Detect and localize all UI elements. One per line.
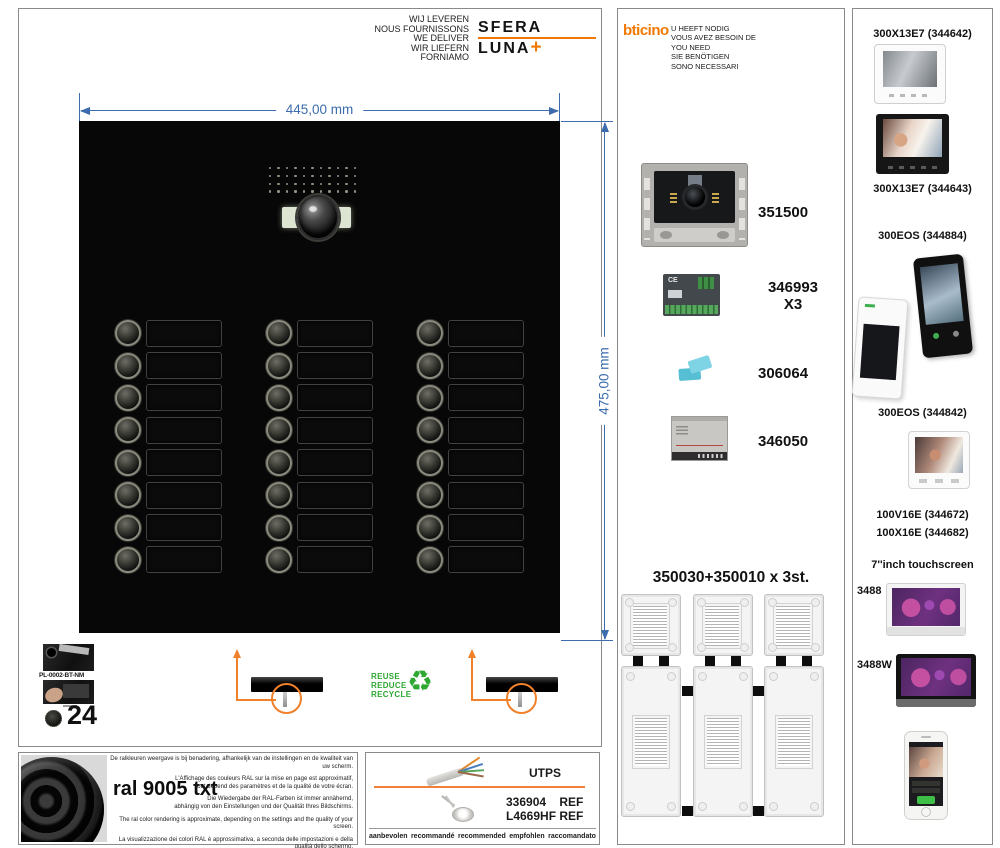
connector-tab xyxy=(705,656,715,666)
flush-box-small xyxy=(693,594,753,656)
arrow-down-icon xyxy=(601,630,609,640)
connector-tab xyxy=(633,656,643,666)
connector-tab xyxy=(776,656,786,666)
call-button-cell xyxy=(417,317,568,349)
word-empfohlen: empfohlen xyxy=(509,833,544,840)
highlight-circle-icon xyxy=(506,683,537,714)
recycle-icon: ♻ xyxy=(407,664,433,699)
name-plate xyxy=(297,514,373,541)
call-button-icon xyxy=(266,417,292,443)
you-need-box: bticino U HEEFT NODIG VOUS AVEZ BESOIN D… xyxy=(617,8,845,845)
speaker-dot xyxy=(286,175,288,177)
speaker-dot xyxy=(269,167,271,169)
speaker-dot xyxy=(337,183,339,185)
height-dimension: 475,00 mm xyxy=(561,121,613,641)
mounting-illustration-left xyxy=(233,649,333,717)
name-plate xyxy=(146,352,222,379)
call-button-icon xyxy=(115,515,141,541)
call-button-cell xyxy=(417,447,568,479)
call-button-icon xyxy=(417,320,443,346)
video-monitor-white-image xyxy=(874,44,946,104)
flush-box-small xyxy=(621,594,681,656)
speaker-dot xyxy=(345,183,347,185)
connector-tab xyxy=(659,656,669,666)
instruction-label xyxy=(630,603,670,649)
handset-white-image xyxy=(852,296,909,399)
ref-351500: 351500 xyxy=(758,204,808,221)
call-button-icon xyxy=(266,450,292,476)
name-plate xyxy=(297,384,373,411)
call-button-cell xyxy=(266,414,417,446)
camera-module-image xyxy=(641,163,748,247)
ref-346993-number: 346993 xyxy=(758,279,828,296)
call-button-cell xyxy=(266,349,417,381)
call-button-icon xyxy=(266,385,292,411)
we-deliver-text: WIJ LEVEREN NOUS FOURNISSONS WE DELIVER … xyxy=(359,15,469,63)
bticino-logo: bticino xyxy=(623,22,669,39)
box-connector xyxy=(682,686,693,696)
disclaimer-nl: De ralkleuren weergave is bij benadering… xyxy=(103,756,353,771)
name-plate xyxy=(146,417,222,444)
speaker-dot xyxy=(286,167,288,169)
speaker-dot xyxy=(277,190,279,192)
speaker-dot xyxy=(320,190,322,192)
speaker-dot xyxy=(354,167,356,169)
speaker-dot xyxy=(328,183,330,185)
name-plate xyxy=(448,352,524,379)
name-plate xyxy=(146,449,222,476)
name-plate xyxy=(448,384,524,411)
arrow-right-icon xyxy=(549,107,559,115)
call-button-icon xyxy=(266,547,292,573)
disclaimer-fr: L'Affichage des couleurs RAL sur la mise… xyxy=(103,776,353,791)
device-label-344642: 300X13E7 (344642) xyxy=(853,28,992,40)
home-button-icon xyxy=(921,807,931,817)
call-button-grid xyxy=(115,317,568,576)
ref-346993: 346993 X3 xyxy=(758,279,828,313)
camera-lens-icon xyxy=(297,195,339,240)
screw-count: 24 xyxy=(67,700,97,731)
call-button-icon xyxy=(115,320,141,346)
device-label-344672: 100V16E (344672) xyxy=(853,509,992,521)
flush-box-tall xyxy=(764,666,824,817)
speaker-dot xyxy=(311,167,313,169)
speaker-dot xyxy=(277,175,279,177)
connector-tab xyxy=(731,656,741,666)
screw-icon xyxy=(45,710,62,727)
call-button-icon xyxy=(115,547,141,573)
speaker-dot xyxy=(286,183,288,185)
call-button-icon xyxy=(417,547,443,573)
call-button-icon xyxy=(266,353,292,379)
flush-box-tall xyxy=(693,666,753,817)
instruction-label xyxy=(632,715,670,769)
instruction-label xyxy=(704,715,742,769)
call-button-icon xyxy=(115,417,141,443)
compatible-devices-box: 300X13E7 (344642) 300X13E7 (344643) 300E… xyxy=(852,8,993,845)
name-plate xyxy=(297,352,373,379)
name-plate xyxy=(297,546,373,573)
cable-box: UTPS 336904 REF L4669HF REF aanbevolen r… xyxy=(365,752,600,845)
plate-ref-label: PL-0002-BT-NM xyxy=(39,672,99,679)
speaker-dot xyxy=(345,190,347,192)
arrow-line xyxy=(236,657,238,701)
speaker-dot xyxy=(303,190,305,192)
speaker-dot xyxy=(286,190,288,192)
plate-photo-top xyxy=(43,644,94,671)
device-label-344643: 300X13E7 (344643) xyxy=(853,183,992,195)
call-button-cell xyxy=(115,317,266,349)
video-monitor-black-image xyxy=(876,114,949,174)
speaker-dot xyxy=(303,175,305,177)
call-button-cell xyxy=(417,511,568,543)
box-connector xyxy=(753,806,764,816)
disclaimer-en: The ral color rendering is approximate, … xyxy=(103,817,353,832)
speaker-dot xyxy=(269,190,271,192)
smartphone-app-image xyxy=(904,731,948,820)
arrow-line xyxy=(471,657,473,701)
device-label-344842: 300EOS (344842) xyxy=(853,407,992,419)
call-button-cell xyxy=(115,349,266,381)
call-button-icon xyxy=(115,482,141,508)
word-aanbevolen: aanbevolen xyxy=(369,833,408,840)
recommended-words: aanbevolen recommandé recommended empfoh… xyxy=(369,828,596,840)
word-recommande: recommandé xyxy=(411,833,455,840)
call-button-icon xyxy=(115,353,141,379)
call-button-cell xyxy=(417,349,568,381)
arrow-line xyxy=(471,699,511,701)
speaker-dot xyxy=(303,167,305,169)
speaker-dot xyxy=(337,190,339,192)
name-plate xyxy=(448,449,524,476)
call-button-cell xyxy=(266,544,417,576)
name-plate xyxy=(297,417,373,444)
speaker-dot xyxy=(311,175,313,177)
call-button-icon xyxy=(417,417,443,443)
call-button-cell xyxy=(115,479,266,511)
call-button-cell xyxy=(266,382,417,414)
witness-line xyxy=(561,640,613,641)
you-need-text: U HEEFT NODIG VOUS AVEZ BESOIN DE YOU NE… xyxy=(671,24,756,71)
call-button-cell xyxy=(417,414,568,446)
cable-ref-2: L4669HF REF xyxy=(506,809,583,823)
mounting-illustration-right xyxy=(468,649,568,717)
call-button-icon xyxy=(417,515,443,541)
highlight-circle-icon xyxy=(271,683,302,714)
speaker-dot xyxy=(294,167,296,169)
sfera-luna-logo: SFERA LUNA+ xyxy=(478,19,601,59)
call-button-icon xyxy=(417,450,443,476)
touchscreen-white-image xyxy=(886,583,966,636)
name-plate xyxy=(146,546,222,573)
name-plate xyxy=(297,320,373,347)
datasheet-page: WIJ LEVEREN NOUS FOURNISSONS WE DELIVER … xyxy=(0,0,1000,848)
name-plate xyxy=(448,482,524,509)
call-button-cell xyxy=(266,511,417,543)
sfera-luna-plus: + xyxy=(530,37,541,58)
arrow-up-icon xyxy=(601,122,609,132)
disclaimer-it: La visualizzazione dei colori RAL è appr… xyxy=(103,837,353,848)
call-button-cell xyxy=(266,447,417,479)
device-label-344682: 100X16E (344682) xyxy=(853,527,992,539)
ral-disclaimer: De ralkleuren weergave is bij benadering… xyxy=(103,756,353,848)
height-dimension-label: 475,00 mm xyxy=(597,337,612,425)
name-plate xyxy=(146,320,222,347)
flush-box-tall xyxy=(621,666,681,817)
speaker-dot xyxy=(354,175,356,177)
call-button-cell xyxy=(115,511,266,543)
recycle-text: REUSE REDUCE RECYCLE xyxy=(371,672,411,699)
ral-color-box: ral 9005 txt De ralkleuren weergave is b… xyxy=(18,752,358,845)
name-plate xyxy=(297,482,373,509)
call-button-cell xyxy=(417,544,568,576)
speaker-dot xyxy=(311,183,313,185)
call-button-cell xyxy=(115,414,266,446)
call-button-icon xyxy=(417,385,443,411)
name-plate xyxy=(146,482,222,509)
speaker-dot xyxy=(294,190,296,192)
speaker-dot xyxy=(337,175,339,177)
speaker-dot xyxy=(277,167,279,169)
instruction-label xyxy=(775,715,813,769)
name-plate xyxy=(448,514,524,541)
connector-image xyxy=(676,356,715,385)
box-connector xyxy=(753,686,764,696)
call-button-icon xyxy=(417,353,443,379)
disclaimer-de: Die Wiedergabe der RAL-Farben ist immer … xyxy=(103,796,353,811)
touchscreen-title: 7''inch touchscreen xyxy=(853,559,992,571)
arrow-left-icon xyxy=(80,107,90,115)
utps-label: UTPS xyxy=(529,766,561,780)
name-plate xyxy=(448,320,524,347)
speaker-dot xyxy=(328,175,330,177)
ral-color-sample-image xyxy=(21,755,107,842)
call-button-icon xyxy=(417,482,443,508)
cable-refs: 336904 REF L4669HF REF xyxy=(506,795,583,823)
cable-ref-1: 336904 REF xyxy=(506,795,583,809)
handset-black-image xyxy=(913,254,973,359)
call-button-cell xyxy=(417,382,568,414)
flush-box-small xyxy=(764,594,824,656)
speaker-dot xyxy=(337,167,339,169)
power-supply-image xyxy=(671,416,728,461)
divider xyxy=(374,786,585,788)
speaker-dot xyxy=(320,167,322,169)
ref-346050: 346050 xyxy=(758,433,808,450)
speaker-dot xyxy=(320,175,322,177)
entry-panel xyxy=(79,121,560,633)
speaker-dot xyxy=(345,167,347,169)
speaker-dot xyxy=(294,183,296,185)
call-button-icon xyxy=(115,385,141,411)
speaker-grille-icon xyxy=(269,167,356,193)
cable-coil-image xyxy=(438,795,478,825)
call-button-icon xyxy=(266,515,292,541)
call-button-icon xyxy=(266,482,292,508)
speaker-dot xyxy=(269,175,271,177)
flush-boxes-title: 350030+350010 x 3st. xyxy=(618,569,844,587)
call-button-cell xyxy=(417,479,568,511)
touchscreen-black-image xyxy=(896,654,976,707)
call-button-cell xyxy=(266,317,417,349)
call-button-cell xyxy=(115,382,266,414)
camera-lens-icon xyxy=(685,187,705,207)
speaker-dot xyxy=(277,183,279,185)
instruction-label xyxy=(773,603,813,649)
word-raccomandato: raccomandato xyxy=(548,833,596,840)
call-button-cell xyxy=(115,544,266,576)
box-connector xyxy=(682,806,693,816)
name-plate xyxy=(146,514,222,541)
name-plate xyxy=(448,417,524,444)
interface-module-image: CE xyxy=(663,274,720,316)
speaker-dot xyxy=(328,167,330,169)
name-plate xyxy=(146,384,222,411)
connector-tab xyxy=(802,656,812,666)
speaker-dot xyxy=(294,175,296,177)
arrow-line xyxy=(236,699,276,701)
speaker-dot xyxy=(311,190,313,192)
word-recommended: recommended xyxy=(458,833,506,840)
instruction-label xyxy=(702,603,742,649)
speaker-dot xyxy=(328,190,330,192)
speaker-dot xyxy=(345,175,347,177)
speaker-dot xyxy=(354,190,356,192)
call-button-cell xyxy=(115,447,266,479)
ref-346993-qty: X3 xyxy=(758,296,828,313)
main-panel-box: WIJ LEVEREN NOUS FOURNISSONS WE DELIVER … xyxy=(18,8,602,747)
ref-306064: 306064 xyxy=(758,365,808,382)
call-button-icon xyxy=(266,320,292,346)
name-plate xyxy=(297,449,373,476)
utp-cable-image xyxy=(426,759,486,787)
speaker-dot xyxy=(269,183,271,185)
speaker-dot xyxy=(354,183,356,185)
name-plate xyxy=(448,546,524,573)
video-monitor-photo-image xyxy=(908,431,970,489)
call-button-cell xyxy=(266,479,417,511)
flush-mounting-boxes-image xyxy=(621,594,843,822)
call-button-icon xyxy=(917,796,935,804)
width-dimension-label: 445,00 mm xyxy=(276,101,364,119)
speaker-dot xyxy=(320,183,322,185)
speaker-dot xyxy=(303,183,305,185)
device-label-344884: 300EOS (344884) xyxy=(853,230,992,242)
call-button-icon xyxy=(115,450,141,476)
